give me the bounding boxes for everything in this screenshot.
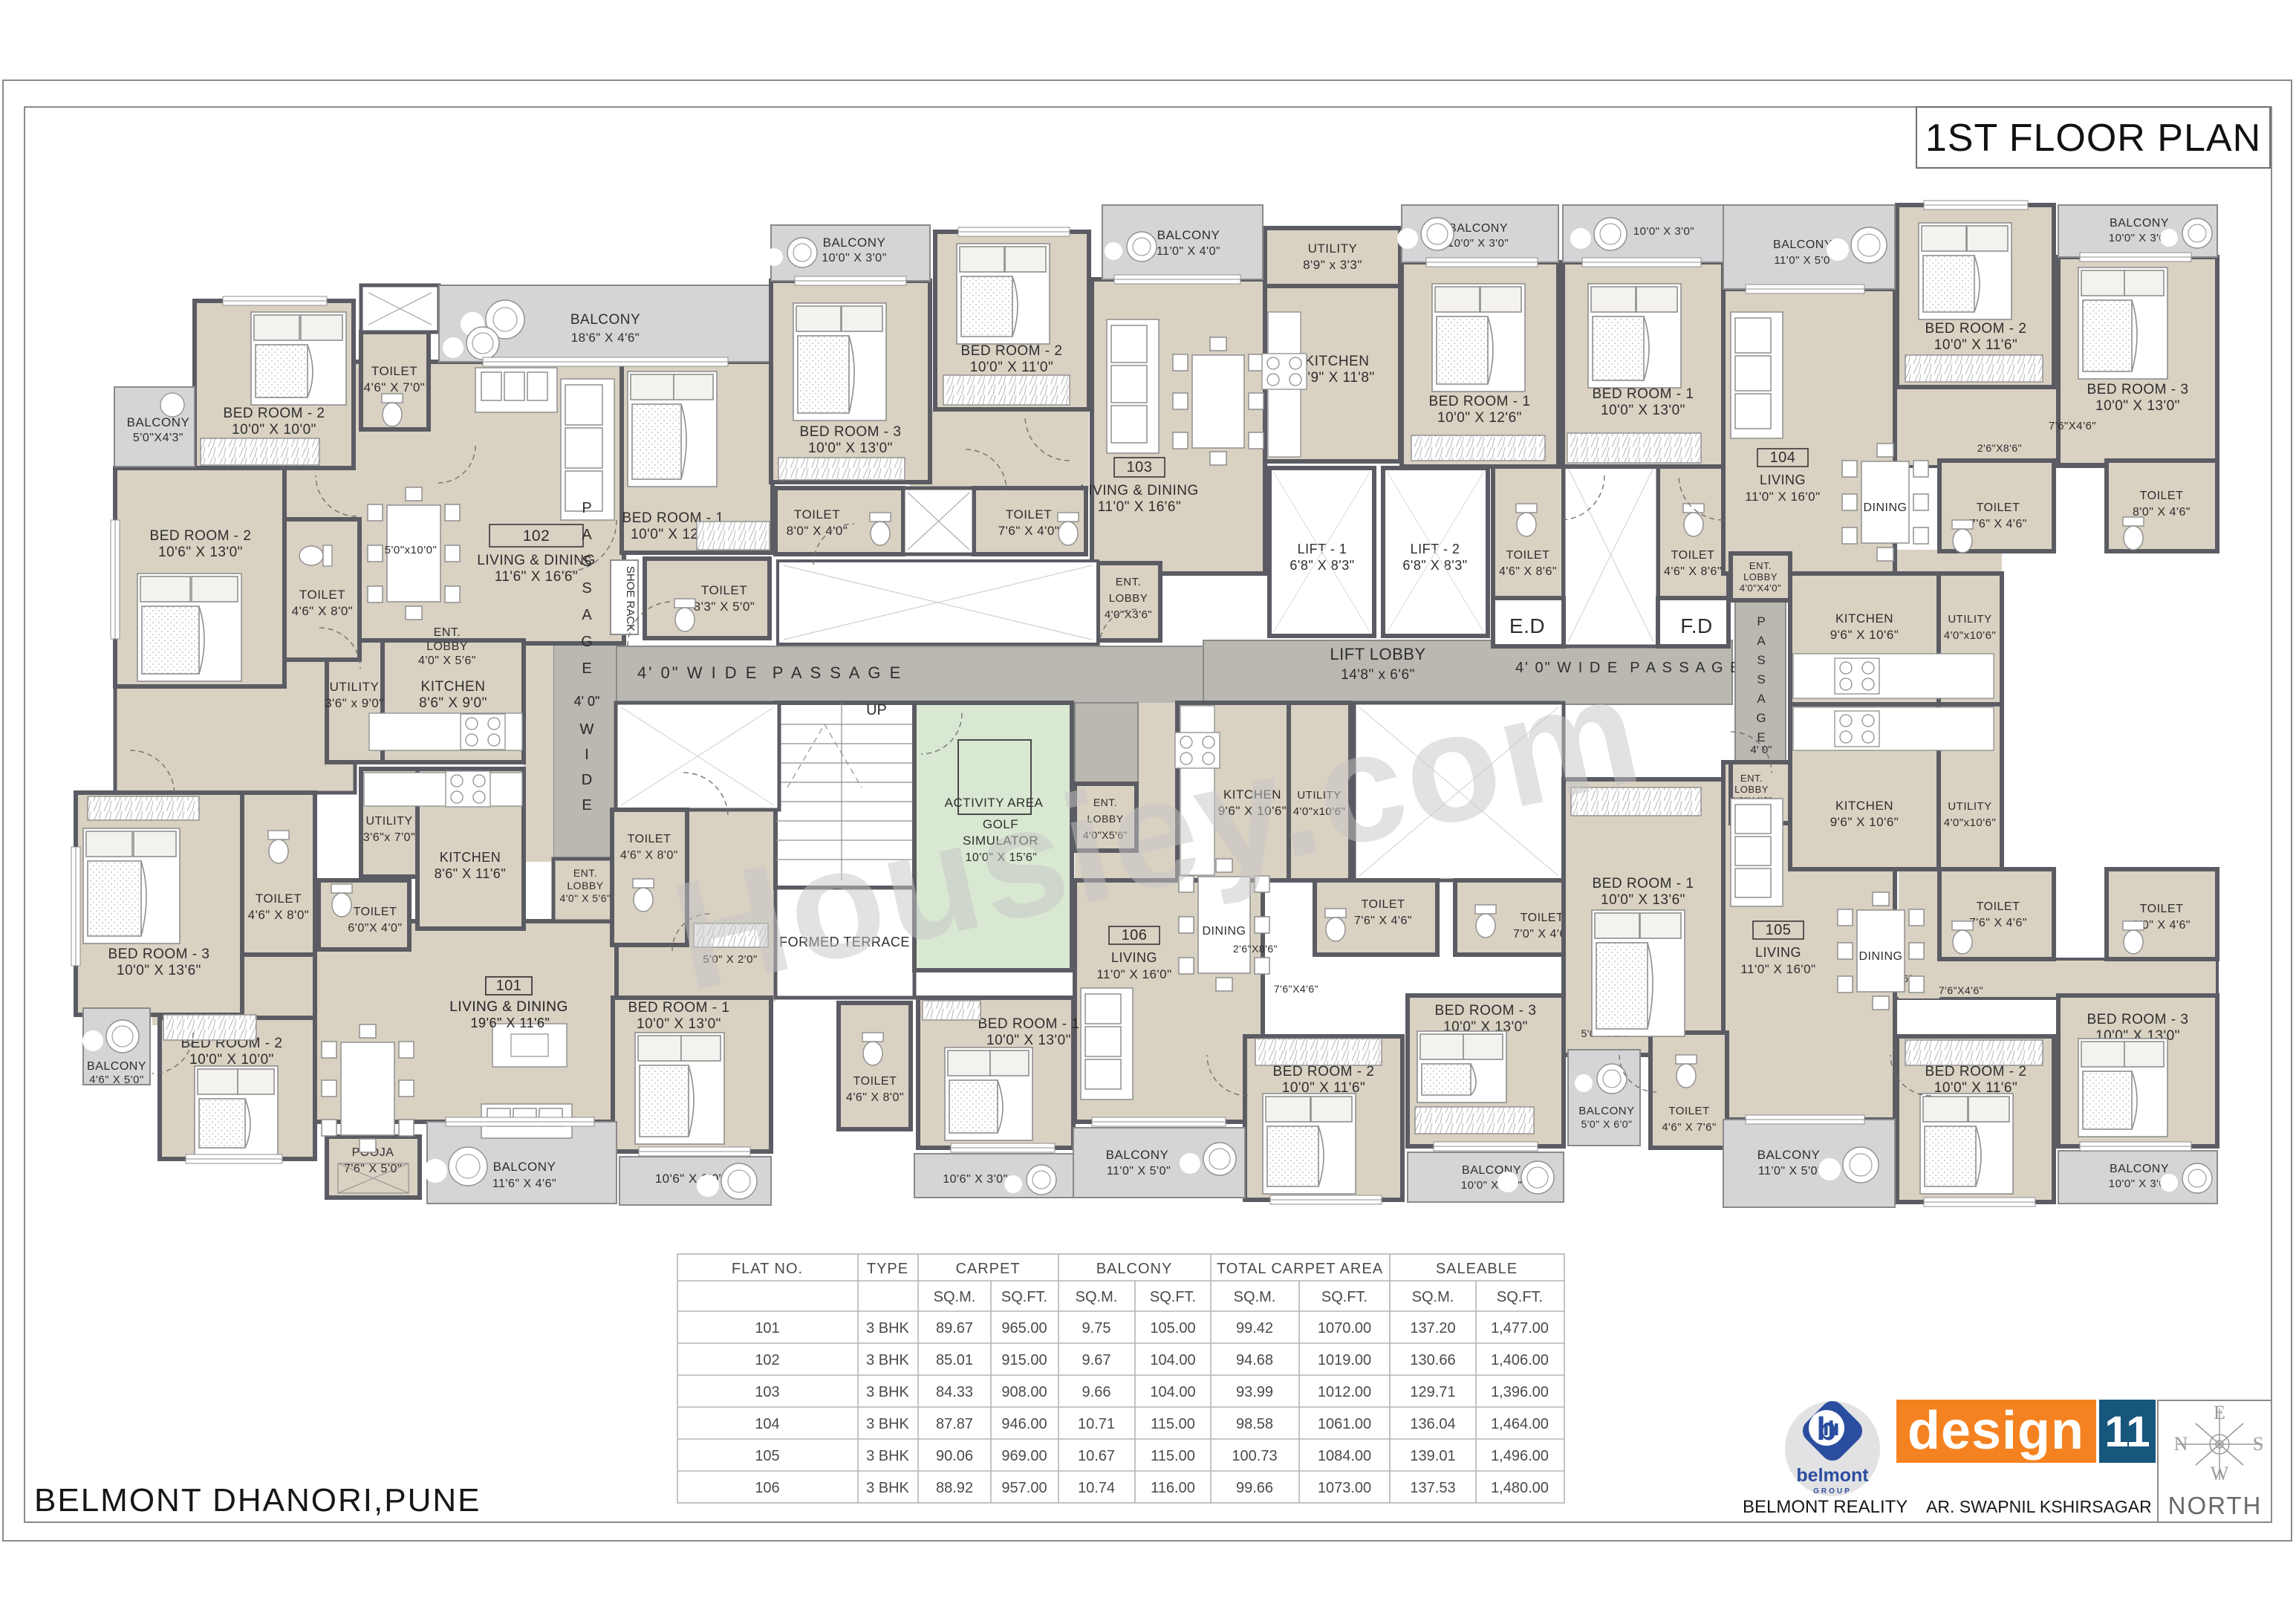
svg-text:3 BHK: 3 BHK bbox=[866, 1480, 909, 1496]
svg-text:104: 104 bbox=[1770, 449, 1796, 466]
svg-text:F.D: F.D bbox=[1680, 614, 1713, 637]
svg-text:LIVING & DINING: LIVING & DINING bbox=[1080, 483, 1199, 498]
svg-text:11'0" X 16'0": 11'0" X 16'0" bbox=[1745, 490, 1820, 504]
svg-text:S: S bbox=[582, 553, 591, 570]
svg-text:94.68: 94.68 bbox=[1236, 1352, 1273, 1368]
svg-text:1019.00: 1019.00 bbox=[1318, 1352, 1371, 1368]
svg-text:11'0" X 16'0": 11'0" X 16'0" bbox=[1096, 967, 1171, 981]
svg-text:TOILET: TOILET bbox=[1977, 501, 2020, 514]
svg-text:9.67: 9.67 bbox=[1082, 1352, 1111, 1368]
svg-text:BED ROOM - 2: BED ROOM - 2 bbox=[1273, 1064, 1375, 1079]
svg-text:11'6" X 16'6": 11'6" X 16'6" bbox=[495, 569, 578, 585]
svg-text:3 BHK: 3 BHK bbox=[866, 1448, 909, 1464]
svg-text:A: A bbox=[582, 607, 592, 623]
svg-text:BALCONY: BALCONY bbox=[2110, 217, 2169, 230]
svg-text:10'0" X 13'6": 10'0" X 13'6" bbox=[1601, 892, 1685, 908]
svg-text:LOBBY: LOBBY bbox=[567, 880, 603, 891]
svg-text:8'0" X 4'0": 8'0" X 4'0" bbox=[787, 524, 848, 538]
svg-text:SALEABLE: SALEABLE bbox=[1436, 1261, 1518, 1277]
svg-text:P: P bbox=[582, 500, 591, 516]
svg-text:19'6" X 11'6": 19'6" X 11'6" bbox=[471, 1016, 550, 1030]
svg-text:BALCONY: BALCONY bbox=[2110, 1163, 2169, 1175]
svg-text:I: I bbox=[585, 747, 589, 763]
svg-text:10'0" X 10'0": 10'0" X 10'0" bbox=[189, 1052, 274, 1068]
svg-text:LOBBY: LOBBY bbox=[1743, 571, 1778, 582]
svg-text:UTILITY: UTILITY bbox=[330, 680, 380, 694]
svg-text:11'0" X 5'0": 11'0" X 5'0" bbox=[1758, 1165, 1822, 1178]
svg-text:90.06: 90.06 bbox=[936, 1448, 973, 1464]
svg-text:S: S bbox=[1757, 672, 1765, 686]
svg-text:10.74: 10.74 bbox=[1078, 1480, 1115, 1496]
svg-text:130.66: 130.66 bbox=[1410, 1352, 1455, 1368]
svg-text:7'6" X 5'0": 7'6" X 5'0" bbox=[344, 1163, 402, 1175]
svg-text:UTILITY: UTILITY bbox=[365, 815, 412, 828]
svg-text:101: 101 bbox=[755, 1320, 779, 1336]
svg-text:10'0" X 13'0": 10'0" X 13'0" bbox=[2095, 398, 2180, 414]
svg-text:10'0" X 13'6": 10'0" X 13'6" bbox=[117, 963, 201, 978]
svg-text:4' 0": 4' 0" bbox=[1750, 744, 1772, 756]
svg-text:G: G bbox=[1756, 711, 1766, 725]
svg-text:85.01: 85.01 bbox=[936, 1352, 973, 1368]
svg-text:14'8" x 6'6": 14'8" x 6'6" bbox=[1341, 667, 1415, 683]
svg-text:7'6" X 4'0": 7'6" X 4'0" bbox=[998, 524, 1060, 538]
svg-text:BALCONY: BALCONY bbox=[1757, 1148, 1821, 1162]
svg-text:LIFT LOBBY: LIFT LOBBY bbox=[1330, 645, 1425, 663]
svg-text:7'6"X4'6": 7'6"X4'6" bbox=[2049, 420, 2096, 432]
svg-text:4'0"x10'6": 4'0"x10'6" bbox=[1944, 816, 1997, 829]
svg-text:11'6" X 4'6": 11'6" X 4'6" bbox=[492, 1178, 556, 1190]
svg-text:11'0" X 5'0": 11'0" X 5'0" bbox=[1107, 1165, 1171, 1178]
svg-text:115.00: 115.00 bbox=[1151, 1448, 1195, 1464]
svg-text:UTILITY: UTILITY bbox=[1308, 241, 1358, 256]
svg-text:LIVING & DINING: LIVING & DINING bbox=[477, 553, 596, 568]
svg-text:105.00: 105.00 bbox=[1150, 1320, 1195, 1336]
svg-text:10'6" X 3'0": 10'6" X 3'0" bbox=[943, 1173, 1008, 1186]
svg-text:BED ROOM - 1: BED ROOM - 1 bbox=[1429, 394, 1531, 409]
svg-text:E.D: E.D bbox=[1509, 614, 1545, 637]
svg-text:BALCONY: BALCONY bbox=[1096, 1261, 1173, 1277]
svg-text:1,406.00: 1,406.00 bbox=[1491, 1352, 1549, 1368]
svg-text:4'6" X 8'0": 4'6" X 8'0" bbox=[248, 908, 310, 922]
svg-text:5'0"x10'0": 5'0"x10'0" bbox=[385, 544, 438, 556]
svg-text:4'6" X 8'0": 4'6" X 8'0" bbox=[846, 1091, 904, 1104]
svg-text:3 BHK: 3 BHK bbox=[866, 1352, 909, 1368]
svg-text:TOILET: TOILET bbox=[1521, 912, 1564, 924]
svg-text:10'0" X 13'0": 10'0" X 13'0" bbox=[1601, 403, 1685, 418]
svg-text:7'6" X 4'6": 7'6" X 4'6" bbox=[1969, 518, 2027, 530]
svg-text:CARPET: CARPET bbox=[955, 1261, 1020, 1277]
svg-text:TOILET: TOILET bbox=[1977, 900, 2020, 913]
svg-text:NORTH: NORTH bbox=[2168, 1492, 2263, 1519]
svg-text:104.00: 104.00 bbox=[1150, 1352, 1195, 1368]
svg-text:LOBBY: LOBBY bbox=[426, 640, 468, 653]
svg-text:UP: UP bbox=[866, 702, 887, 718]
svg-text:4' 0" W I D E P A S S A G E: 4' 0" W I D E P A S S A G E bbox=[637, 663, 903, 682]
svg-text:TOILET: TOILET bbox=[853, 1075, 897, 1088]
svg-text:9'6" X 10'6": 9'6" X 10'6" bbox=[1830, 628, 1899, 642]
svg-text:102: 102 bbox=[755, 1352, 779, 1368]
svg-text:4'6" X 5'0": 4'6" X 5'0" bbox=[89, 1074, 144, 1086]
svg-text:4'0"x10'6": 4'0"x10'6" bbox=[1944, 629, 1997, 642]
svg-text:BED ROOM - 2: BED ROOM - 2 bbox=[224, 406, 325, 421]
svg-text:TOILET: TOILET bbox=[2140, 903, 2184, 915]
svg-text:105: 105 bbox=[1766, 922, 1792, 938]
svg-text:TOILET: TOILET bbox=[354, 906, 397, 918]
svg-text:P: P bbox=[1757, 614, 1765, 629]
svg-text:BALCONY: BALCONY bbox=[823, 236, 886, 250]
svg-text:BED ROOM - 1: BED ROOM - 1 bbox=[978, 1016, 1080, 1032]
svg-text:3'6"x 7'0": 3'6"x 7'0" bbox=[363, 831, 416, 844]
svg-text:4' 0": 4' 0" bbox=[574, 694, 600, 709]
svg-text:TOILET: TOILET bbox=[628, 833, 671, 845]
svg-text:S: S bbox=[2253, 1433, 2263, 1455]
svg-text:8'9" X 11'8": 8'9" X 11'8" bbox=[1299, 370, 1374, 386]
svg-text:DINING: DINING bbox=[1864, 501, 1908, 514]
svg-text:8'6" X 11'6": 8'6" X 11'6" bbox=[435, 866, 506, 881]
svg-text:S: S bbox=[1757, 653, 1765, 667]
svg-text:102: 102 bbox=[523, 527, 550, 545]
svg-text:TOILET: TOILET bbox=[794, 507, 840, 522]
svg-text:TOILET: TOILET bbox=[256, 891, 302, 906]
svg-text:BALCONY: BALCONY bbox=[127, 415, 190, 429]
svg-text:106: 106 bbox=[1122, 927, 1148, 943]
svg-text:5'0"X4'3": 5'0"X4'3" bbox=[133, 432, 183, 444]
svg-text:10'0" X 3'0": 10'0" X 3'0" bbox=[1633, 225, 1694, 238]
svg-text:N: N bbox=[2174, 1433, 2188, 1455]
svg-text:1,480.00: 1,480.00 bbox=[1491, 1480, 1549, 1496]
svg-text:BED ROOM - 2: BED ROOM - 2 bbox=[1925, 321, 2027, 337]
svg-text:10'0" X 13'0": 10'0" X 13'0" bbox=[808, 441, 893, 456]
svg-text:LIVING: LIVING bbox=[1760, 472, 1806, 487]
svg-text:SQ.FT.: SQ.FT. bbox=[1001, 1289, 1047, 1305]
svg-text:D: D bbox=[582, 772, 592, 788]
svg-text:1,396.00: 1,396.00 bbox=[1491, 1384, 1549, 1400]
svg-text:10'0" X 13'0": 10'0" X 13'0" bbox=[986, 1033, 1071, 1048]
svg-text:E: E bbox=[2214, 1402, 2225, 1423]
svg-text:W: W bbox=[580, 721, 594, 738]
svg-text:4'6" X 8'0": 4'6" X 8'0" bbox=[292, 604, 354, 618]
svg-text:W: W bbox=[2211, 1463, 2229, 1484]
svg-text:10.67: 10.67 bbox=[1078, 1448, 1115, 1464]
svg-text:TOILET: TOILET bbox=[1668, 1105, 1709, 1117]
svg-text:BED ROOM - 3: BED ROOM - 3 bbox=[800, 424, 902, 440]
svg-text:BED ROOM - 1: BED ROOM - 1 bbox=[1593, 386, 1694, 402]
svg-text:8'6" X 9'0": 8'6" X 9'0" bbox=[419, 695, 487, 711]
svg-text:LIVING & DINING: LIVING & DINING bbox=[449, 999, 568, 1015]
svg-text:BED ROOM - 3: BED ROOM - 3 bbox=[1435, 1003, 1537, 1019]
svg-text:LIFT - 2: LIFT - 2 bbox=[1411, 542, 1460, 556]
svg-text:9'6" X 10'6": 9'6" X 10'6" bbox=[1830, 815, 1899, 829]
svg-text:SQ.FT.: SQ.FT. bbox=[1497, 1289, 1543, 1305]
svg-text:1012.00: 1012.00 bbox=[1318, 1384, 1371, 1400]
svg-text:BED ROOM - 1: BED ROOM - 1 bbox=[1593, 876, 1694, 891]
svg-text:6'0"X 4'0": 6'0"X 4'0" bbox=[348, 922, 402, 935]
svg-text:BELMONT REALITY: BELMONT REALITY bbox=[1743, 1497, 1908, 1517]
svg-text:TOILET: TOILET bbox=[1506, 549, 1550, 562]
svg-text:E: E bbox=[582, 660, 591, 677]
svg-text:104: 104 bbox=[755, 1416, 779, 1432]
svg-text:UTILITY: UTILITY bbox=[1948, 800, 1991, 813]
svg-text:2'6"X8'6": 2'6"X8'6" bbox=[1233, 943, 1278, 955]
svg-text:BED ROOM - 3: BED ROOM - 3 bbox=[2087, 1012, 2189, 1027]
svg-text:4'0" X 5'6": 4'0" X 5'6" bbox=[418, 655, 476, 667]
svg-text:99.66: 99.66 bbox=[1236, 1480, 1273, 1496]
svg-text:969.00: 969.00 bbox=[1001, 1448, 1047, 1464]
svg-text:BED ROOM - 3: BED ROOM - 3 bbox=[108, 946, 210, 962]
svg-text:BALCONY: BALCONY bbox=[1157, 228, 1220, 242]
svg-text:4'0" X 5'6": 4'0" X 5'6" bbox=[559, 892, 611, 904]
svg-text:965.00: 965.00 bbox=[1001, 1320, 1047, 1336]
svg-text:KITCHEN: KITCHEN bbox=[1835, 799, 1893, 813]
svg-text:TOILET: TOILET bbox=[1671, 549, 1715, 562]
svg-text:11'0" X 16'6": 11'0" X 16'6" bbox=[1098, 499, 1181, 515]
svg-text:115.00: 115.00 bbox=[1151, 1416, 1195, 1432]
svg-text:4'6" X 7'6": 4'6" X 7'6" bbox=[1662, 1121, 1717, 1134]
svg-text:3'6" x 9'0": 3'6" x 9'0" bbox=[325, 696, 384, 710]
svg-text:LIVING: LIVING bbox=[1111, 950, 1157, 965]
svg-text:106: 106 bbox=[755, 1480, 779, 1496]
svg-text:1061.00: 1061.00 bbox=[1318, 1416, 1371, 1432]
svg-text:AR. SWAPNIL KSHIRSAGAR: AR. SWAPNIL KSHIRSAGAR bbox=[1926, 1497, 2152, 1516]
svg-text:1073.00: 1073.00 bbox=[1318, 1480, 1371, 1496]
svg-text:design: design bbox=[1908, 1401, 2084, 1461]
svg-text:4'0"X4'0": 4'0"X4'0" bbox=[1740, 582, 1781, 594]
svg-text:ENT.: ENT. bbox=[434, 626, 461, 639]
svg-text:A: A bbox=[1757, 634, 1766, 648]
svg-text:3 BHK: 3 BHK bbox=[866, 1416, 909, 1432]
svg-text:99.42: 99.42 bbox=[1236, 1320, 1273, 1336]
svg-text:9.75: 9.75 bbox=[1082, 1320, 1111, 1336]
svg-text:TOILET: TOILET bbox=[299, 588, 345, 602]
svg-text:88.92: 88.92 bbox=[936, 1480, 973, 1496]
svg-text:10'0" X 11'0": 10'0" X 11'0" bbox=[970, 360, 1053, 375]
svg-text:TOILET: TOILET bbox=[701, 583, 747, 597]
svg-text:7'6" X 4'6": 7'6" X 4'6" bbox=[1354, 915, 1412, 927]
svg-text:BED ROOM - 3: BED ROOM - 3 bbox=[2087, 382, 2189, 397]
svg-text:LIVING: LIVING bbox=[1755, 945, 1801, 960]
svg-text:SQ.M.: SQ.M. bbox=[934, 1289, 976, 1305]
svg-text:1,496.00: 1,496.00 bbox=[1491, 1448, 1549, 1464]
svg-text:SQ.M.: SQ.M. bbox=[1076, 1289, 1118, 1305]
svg-text:ENT.: ENT. bbox=[573, 867, 597, 879]
svg-text:139.01: 139.01 bbox=[1410, 1448, 1455, 1464]
svg-text:4'6" X 8'6": 4'6" X 8'6" bbox=[1499, 565, 1557, 578]
svg-text:BED ROOM - 2: BED ROOM - 2 bbox=[1925, 1064, 2027, 1079]
svg-text:GROUP: GROUP bbox=[1813, 1487, 1852, 1495]
svg-text:DINING: DINING bbox=[1203, 925, 1246, 938]
svg-text:BELMONT DHANORI,PUNE: BELMONT DHANORI,PUNE bbox=[34, 1482, 481, 1519]
svg-text:101: 101 bbox=[496, 978, 522, 994]
svg-text:KITCHEN: KITCHEN bbox=[421, 679, 486, 695]
svg-text:SQ.M.: SQ.M. bbox=[1234, 1289, 1276, 1305]
svg-text:LOBBY: LOBBY bbox=[1109, 592, 1148, 605]
svg-text:1ST FLOOR PLAN: 1ST FLOOR PLAN bbox=[1925, 117, 2261, 160]
svg-text:1,464.00: 1,464.00 bbox=[1491, 1416, 1549, 1432]
svg-text:ENT.: ENT. bbox=[1116, 576, 1142, 588]
svg-text:BALCONY: BALCONY bbox=[493, 1160, 556, 1174]
svg-text:S: S bbox=[582, 580, 591, 597]
svg-text:G: G bbox=[581, 634, 593, 650]
svg-text:93.99: 93.99 bbox=[1236, 1384, 1273, 1400]
svg-text:BED ROOM - 2: BED ROOM - 2 bbox=[150, 528, 252, 544]
svg-text:1,477.00: 1,477.00 bbox=[1491, 1320, 1549, 1336]
svg-text:3 BHK: 3 BHK bbox=[866, 1320, 909, 1336]
svg-text:SQ.FT.: SQ.FT. bbox=[1321, 1289, 1367, 1305]
svg-text:7'6"X4'6": 7'6"X4'6" bbox=[1939, 984, 1983, 996]
svg-text:SQ.FT.: SQ.FT. bbox=[1150, 1289, 1196, 1305]
svg-text:A: A bbox=[582, 527, 592, 543]
svg-text:10'0" X 11'6": 10'0" X 11'6" bbox=[1934, 337, 2017, 353]
svg-text:103: 103 bbox=[755, 1384, 779, 1400]
svg-text:136.04: 136.04 bbox=[1410, 1416, 1455, 1432]
svg-text:BALCONY: BALCONY bbox=[87, 1060, 146, 1073]
svg-text:A: A bbox=[1757, 692, 1766, 706]
svg-text:98.58: 98.58 bbox=[1236, 1416, 1273, 1432]
svg-text:7'6"X4'6": 7'6"X4'6" bbox=[1274, 983, 1318, 995]
svg-text:908.00: 908.00 bbox=[1001, 1384, 1047, 1400]
svg-text:6'8" X 8'3": 6'8" X 8'3" bbox=[1402, 558, 1467, 573]
svg-text:129.71: 129.71 bbox=[1410, 1384, 1455, 1400]
svg-text:18'6" X 4'6": 18'6" X 4'6" bbox=[571, 331, 640, 345]
svg-text:100.73: 100.73 bbox=[1232, 1448, 1277, 1464]
svg-text:LIFT - 1: LIFT - 1 bbox=[1298, 542, 1347, 556]
svg-text:5'0" X 6'0": 5'0" X 6'0" bbox=[1581, 1118, 1632, 1130]
svg-text:1084.00: 1084.00 bbox=[1318, 1448, 1371, 1464]
svg-text:E: E bbox=[1757, 730, 1765, 744]
svg-text:946.00: 946.00 bbox=[1001, 1416, 1047, 1432]
svg-text:7'6" X 4'6": 7'6" X 4'6" bbox=[1969, 917, 2027, 929]
svg-text:116.00: 116.00 bbox=[1151, 1480, 1195, 1496]
svg-text:DINING: DINING bbox=[1859, 950, 1903, 963]
svg-text:KITCHEN: KITCHEN bbox=[1835, 611, 1893, 626]
svg-text:10.71: 10.71 bbox=[1078, 1416, 1115, 1432]
svg-text:10'6" X 13'0": 10'6" X 13'0" bbox=[158, 545, 243, 560]
svg-text:BED ROOM - 2: BED ROOM - 2 bbox=[961, 343, 1063, 359]
svg-text:10'0" X 3'0": 10'0" X 3'0" bbox=[822, 252, 887, 264]
svg-text:BALCONY: BALCONY bbox=[1578, 1105, 1634, 1117]
svg-text:10'0" X 12'6": 10'0" X 12'6" bbox=[1437, 410, 1522, 426]
svg-text:4'6" X 7'0": 4'6" X 7'0" bbox=[364, 380, 426, 394]
svg-text:137.20: 137.20 bbox=[1410, 1320, 1455, 1336]
svg-text:87.87: 87.87 bbox=[936, 1416, 973, 1432]
svg-text:SQ.M.: SQ.M. bbox=[1412, 1289, 1454, 1305]
svg-text:ENT.: ENT. bbox=[1749, 560, 1772, 571]
svg-text:KITCHEN: KITCHEN bbox=[1305, 354, 1370, 369]
svg-text:TYPE: TYPE bbox=[867, 1261, 908, 1277]
svg-text:TOILET: TOILET bbox=[1362, 898, 1405, 911]
svg-text:BALCONY: BALCONY bbox=[570, 312, 640, 328]
svg-text:KITCHEN: KITCHEN bbox=[440, 850, 501, 865]
svg-text:103: 103 bbox=[1127, 459, 1153, 475]
svg-text:E: E bbox=[582, 797, 591, 813]
svg-text:8'9" x 3'3": 8'9" x 3'3" bbox=[1303, 258, 1362, 272]
svg-text:4'6" X 8'6": 4'6" X 8'6" bbox=[1664, 565, 1722, 578]
svg-text:104.00: 104.00 bbox=[1150, 1384, 1195, 1400]
svg-text:6'8" X 8'3": 6'8" X 8'3" bbox=[1290, 558, 1354, 573]
svg-text:84.33: 84.33 bbox=[936, 1384, 973, 1400]
svg-text:89.67: 89.67 bbox=[936, 1320, 973, 1336]
svg-text:ENT.: ENT. bbox=[1740, 773, 1763, 784]
svg-text:957.00: 957.00 bbox=[1001, 1480, 1047, 1496]
svg-text:11'0" X 4'0": 11'0" X 4'0" bbox=[1157, 245, 1220, 258]
svg-text:BALCONY: BALCONY bbox=[1106, 1148, 1169, 1162]
svg-text:1070.00: 1070.00 bbox=[1318, 1320, 1371, 1336]
svg-text:LOBBY: LOBBY bbox=[1734, 784, 1769, 795]
svg-text:137.53: 137.53 bbox=[1410, 1480, 1455, 1496]
svg-text:2'6"X8'6": 2'6"X8'6" bbox=[1977, 442, 2022, 454]
svg-text:UTILITY: UTILITY bbox=[1948, 613, 1991, 626]
svg-text:TOILET: TOILET bbox=[371, 364, 417, 378]
svg-text:TOILET: TOILET bbox=[1006, 507, 1052, 522]
svg-text:11'0" X 5'0": 11'0" X 5'0" bbox=[1774, 254, 1834, 267]
svg-text:10'0" X 3'0": 10'0" X 3'0" bbox=[1448, 237, 1509, 250]
svg-text:FLAT NO.: FLAT NO. bbox=[732, 1261, 803, 1277]
svg-text:3 BHK: 3 BHK bbox=[866, 1384, 909, 1400]
svg-text:10'0" X 10'0": 10'0" X 10'0" bbox=[232, 422, 316, 438]
svg-text:TOTAL CARPET AREA: TOTAL CARPET AREA bbox=[1217, 1261, 1383, 1277]
svg-text:belmont: belmont bbox=[1796, 1465, 1869, 1486]
svg-text:11: 11 bbox=[2104, 1408, 2150, 1456]
svg-text:9.66: 9.66 bbox=[1082, 1384, 1111, 1400]
svg-text:SHOE RACK: SHOE RACK bbox=[624, 566, 637, 631]
svg-text:TOILET: TOILET bbox=[2140, 490, 2184, 502]
svg-text:8'3" X 5'0": 8'3" X 5'0" bbox=[694, 600, 755, 614]
svg-text:BALCONY: BALCONY bbox=[1448, 222, 1508, 235]
svg-text:105: 105 bbox=[755, 1448, 779, 1464]
svg-text:11'0" X 16'0": 11'0" X 16'0" bbox=[1740, 962, 1815, 976]
svg-text:BALCONY: BALCONY bbox=[1773, 238, 1832, 251]
svg-text:915.00: 915.00 bbox=[1001, 1352, 1047, 1368]
